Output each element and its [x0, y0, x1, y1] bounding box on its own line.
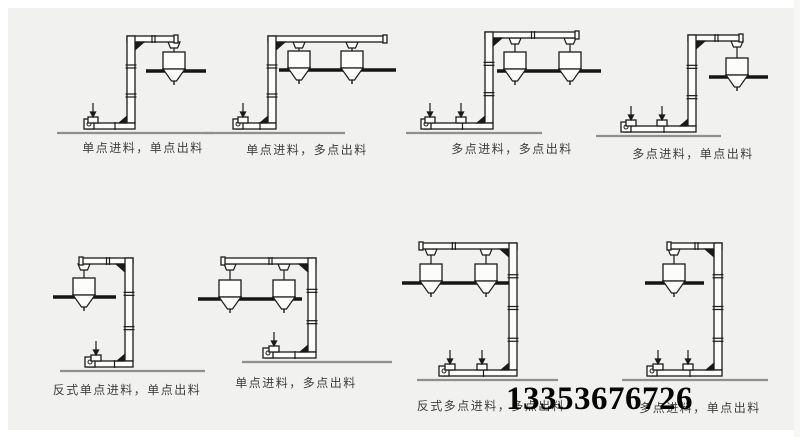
diagram-7-drawing: [402, 242, 558, 380]
phone-number: 13353676726: [506, 383, 693, 416]
diagram-4-caption: 多点进料，单点出料: [632, 145, 754, 162]
diagram-4-drawing: [596, 34, 768, 136]
diagram-2-caption: 单点进料，多点出料: [246, 141, 368, 158]
diagram-8-drawing: [622, 242, 768, 380]
diagram-1-caption: 单点进料，单点出料: [82, 139, 204, 156]
diagram-3-caption: 多点进料，多点出料: [451, 140, 573, 157]
diagram-6-drawing: [198, 257, 392, 362]
diagram-2-drawing: [204, 35, 396, 133]
diagram-6-caption: 单点进料，多点出料: [235, 374, 357, 391]
diagram-5-drawing: [53, 257, 205, 371]
diagram-3-drawing: [406, 31, 601, 133]
page: 单点进料，单点出料 单点进料，多点出料 多点进料，多点出料 多点进料，单点出料 …: [0, 0, 800, 437]
elevator-diagrams-canvas: [0, 0, 800, 437]
diagram-1-drawing: [57, 35, 213, 133]
diagram-5-caption: 反式单点进料，单点出料: [53, 381, 202, 398]
